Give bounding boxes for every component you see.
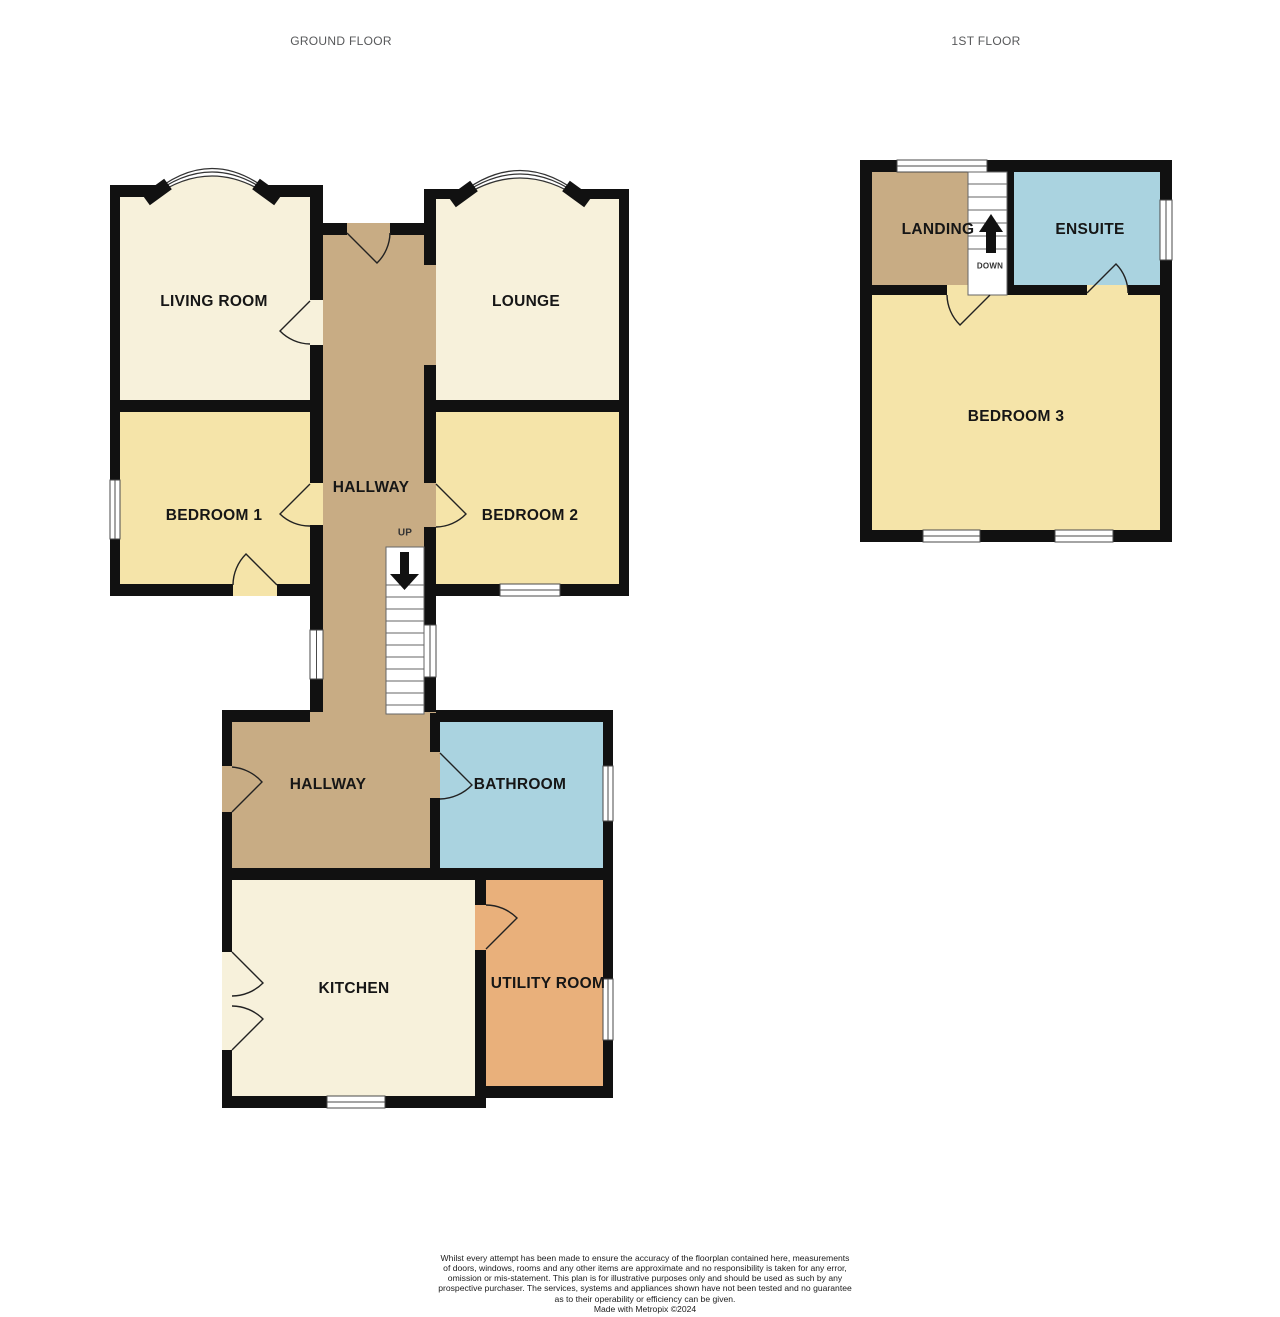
room-hallway-lower [222,710,440,880]
first-floor-title: 1ST FLOOR [951,34,1020,48]
metropix-credit: Made with Metropix ©2024 [385,1304,905,1314]
stairs-up-arrow [400,552,409,575]
disclaimer: Whilst every attempt has been made to en… [385,1253,905,1314]
label-ensuite: ENSUITE [1055,221,1124,239]
label-kitchen: KITCHEN [319,980,390,998]
floorplan-page: GROUND FLOOR 1ST FLOOR LIVING ROOM LOUNG… [0,0,1280,1317]
label-bathroom: BATHROOM [474,776,567,794]
bay-window-living-room [146,169,278,201]
disclaimer-line: omission or mis-statement. This plan is … [385,1273,905,1283]
label-bedroom-2: BEDROOM 2 [482,507,579,525]
label-living-room: LIVING ROOM [160,293,268,311]
disclaimer-line: of doors, windows, rooms and any other i… [385,1263,905,1273]
room-bedroom-2 [424,400,629,596]
disclaimer-line: as to their operability or efficiency ca… [385,1294,905,1304]
disclaimer-line: Whilst every attempt has been made to en… [385,1253,905,1263]
floorplan-drawing [0,0,1280,1317]
ground-floor-title: GROUND FLOOR [290,34,392,48]
first-floor-room-fills [860,160,1172,542]
disclaimer-line: prospective purchaser. The services, sys… [385,1283,905,1293]
label-landing: LANDING [902,221,975,239]
label-lounge: LOUNGE [492,293,560,311]
room-bathroom [440,713,613,880]
label-hallway-upper: HALLWAY [333,479,409,497]
label-bedroom-3: BEDROOM 3 [968,408,1065,426]
bay-window-lounge [452,171,588,203]
ground-floor-room-fills [110,185,629,1108]
room-bedroom-1 [110,400,323,596]
label-stairs-up: UP [398,528,412,539]
label-utility-room: UTILITY ROOM [491,975,605,993]
label-stairs-down: DOWN [977,262,1003,271]
label-bedroom-1: BEDROOM 1 [166,507,263,525]
stairs-ground-floor [386,547,424,714]
label-hallway-lower: HALLWAY [290,776,366,794]
